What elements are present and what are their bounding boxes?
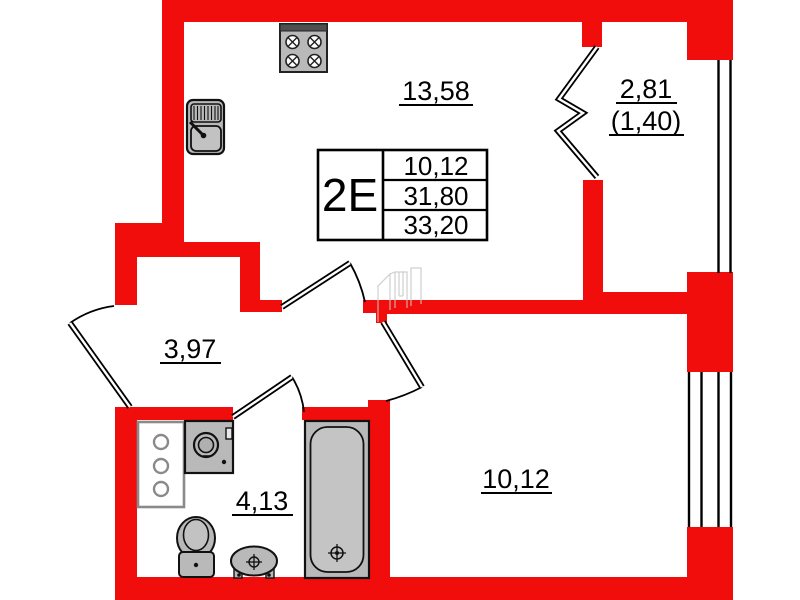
wall-segment: [687, 0, 733, 60]
washing-machine-icon: [185, 421, 233, 473]
floor-plan-svg: 13,58 2,81 (1,40) 3,97 4,13 10,12 2E 10,…: [0, 0, 800, 600]
wall-segment: [593, 292, 687, 304]
unit-area-row-1: 10,12: [403, 151, 468, 181]
bathtub-icon: [305, 421, 369, 578]
wall-segment: [582, 22, 602, 47]
bedroom-door: [383, 322, 422, 401]
wall-segment: [687, 272, 733, 372]
wall-segment: [240, 300, 282, 312]
hallway-area-label: 3,97: [164, 334, 217, 364]
living-room-door: [282, 263, 365, 307]
balcony-door: [558, 47, 597, 177]
entrance-door: [70, 306, 130, 407]
wall-segment: [115, 577, 733, 600]
unit-area-row-3: 33,20: [403, 210, 468, 240]
wall-segment: [687, 527, 733, 600]
bathroom-area-label: 4,13: [236, 486, 289, 516]
wall-segment: [583, 180, 603, 302]
kitchen-living-area-label: 13,58: [402, 76, 470, 106]
wall-segment: [162, 0, 184, 242]
bedroom-area-label: 10,12: [482, 464, 550, 494]
bathroom-door: [233, 377, 304, 417]
wall-segment: [368, 400, 390, 577]
unit-area-row-2: 31,80: [403, 181, 468, 211]
wash-basin-icon: [231, 547, 277, 579]
balcony-area-label: 2,81: [620, 74, 673, 104]
wall-segment: [137, 407, 233, 420]
wall-segment: [115, 223, 183, 242]
wall-segment: [302, 407, 368, 420]
wall-segment: [115, 407, 137, 600]
wall-segment: [137, 242, 260, 257]
wall-segment: [162, 0, 688, 22]
floor-plan: 13,58 2,81 (1,40) 3,97 4,13 10,12 2E 10,…: [0, 0, 800, 600]
unit-type-label: 2E: [322, 169, 378, 221]
stove-icon: [280, 24, 327, 72]
unit-info-table: 2E 10,12 31,80 33,20: [318, 150, 487, 240]
kitchen-sink-icon: [187, 100, 224, 154]
balcony-reduced-area-label: (1,40): [611, 106, 682, 136]
wall-segment: [115, 242, 137, 305]
riser-cabinet-icon: [138, 422, 184, 507]
toilet-icon: [177, 517, 215, 577]
